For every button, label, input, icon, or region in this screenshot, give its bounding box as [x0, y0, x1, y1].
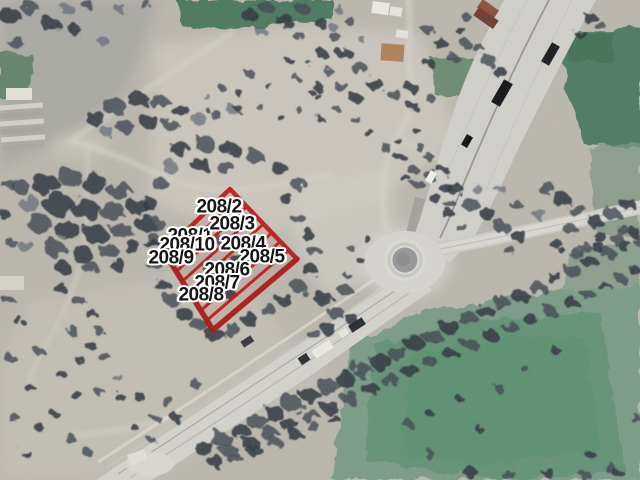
film-grain-overlay: [0, 0, 640, 480]
map-viewport[interactable]: 208/1 208/2 208/3 208/10 208/4 208/9 208…: [0, 0, 640, 480]
satellite-map-canvas[interactable]: [0, 0, 640, 480]
